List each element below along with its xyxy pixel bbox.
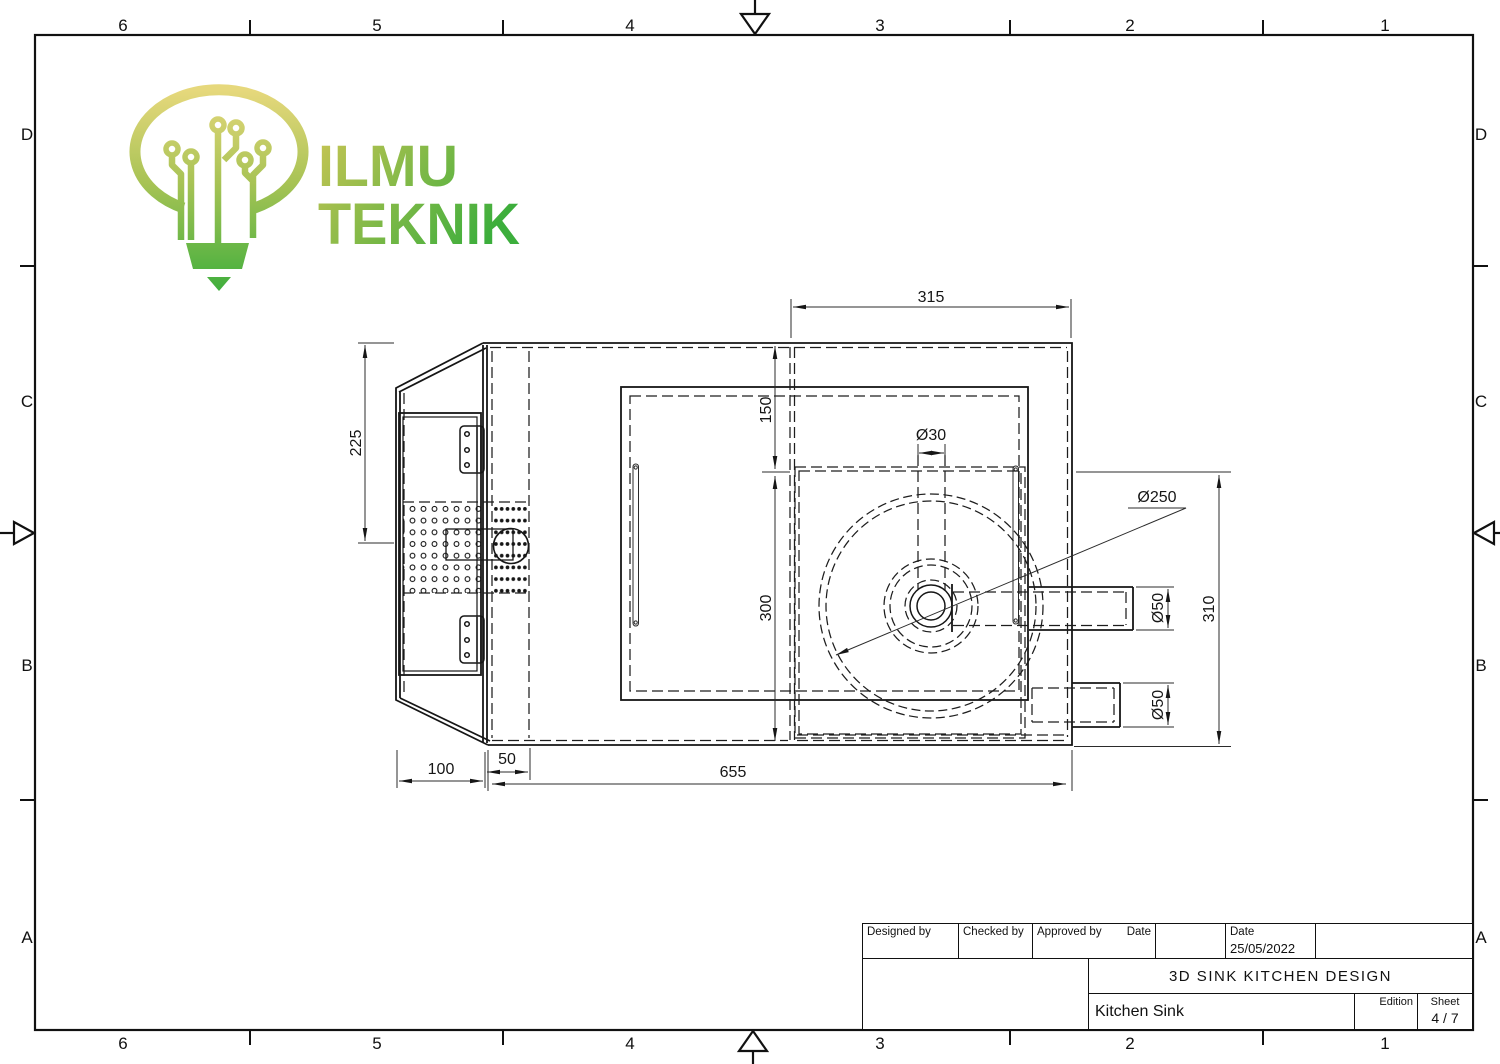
- perforation-field: [404, 504, 529, 593]
- grid-col-label: 4: [625, 16, 634, 35]
- empty-cell: [1316, 924, 1472, 958]
- grid-row-label: A: [1475, 928, 1487, 947]
- dim-right-height: 310: [1201, 596, 1218, 623]
- empty-cell: [1156, 924, 1226, 958]
- company-logo: ILMU TEKNIK: [135, 90, 520, 291]
- edition-label: Edition: [1379, 996, 1413, 1008]
- cover-slots: [633, 464, 1019, 626]
- date-cell: Date 25/05/2022: [1226, 924, 1316, 958]
- logo-word-1: ILMU: [318, 134, 458, 199]
- grid-row-label: A: [21, 928, 33, 947]
- dim-drain-hole: Ø30: [916, 427, 946, 444]
- dim-body-width: 655: [720, 764, 747, 781]
- hinge-top: [460, 426, 484, 473]
- dim-outlet-upper: Ø50: [1150, 593, 1167, 623]
- title-block: Designed by Checked by Approved by Date …: [862, 923, 1473, 1030]
- grid-col-label: 2: [1125, 16, 1134, 35]
- title-area: 3D SINK KITCHEN DESIGN Kitchen Sink Edit…: [1089, 959, 1472, 1029]
- grid-row-label: C: [21, 392, 33, 411]
- grid-col-label: 6: [118, 1034, 127, 1053]
- approved-by-label: Approved by: [1037, 926, 1102, 956]
- title-block-header-row: Designed by Checked by Approved by Date …: [863, 924, 1472, 959]
- hinge-bottom: [460, 616, 484, 663]
- dim-left-height: 225: [348, 430, 365, 457]
- grid-col-label: 3: [875, 16, 884, 35]
- dim-top-width: 315: [918, 289, 945, 306]
- grid-col-label: 2: [1125, 1034, 1134, 1053]
- grid-col-label: 1: [1380, 16, 1389, 35]
- date-label: Date: [1127, 926, 1151, 956]
- grid-col-label: 1: [1380, 1034, 1389, 1053]
- drain-opening: [910, 585, 952, 627]
- grid-col-label: 4: [625, 1034, 634, 1053]
- grid-ticks: [20, 20, 1488, 1045]
- approved-by-cell: Approved by Date: [1033, 924, 1156, 958]
- designed-by-label: Designed by: [867, 926, 931, 938]
- sheet-cell: Sheet 4 / 7: [1417, 994, 1472, 1029]
- grid-col-label: 3: [875, 1034, 884, 1053]
- date-value: 25/05/2022: [1230, 941, 1311, 956]
- bowl-hidden-circles: [819, 494, 1043, 718]
- sheet-value: 4 / 7: [1431, 1010, 1458, 1026]
- part-title: Kitchen Sink: [1089, 994, 1354, 1029]
- checked-by-cell: Checked by: [959, 924, 1033, 958]
- part-row: Kitchen Sink Edition Sheet 4 / 7: [1089, 994, 1472, 1029]
- dim-strip-width: 50: [498, 751, 516, 768]
- drawing-sheet: 6 5 4 3 2 1 6 5 4 3 2 1 D C B A D C B A: [0, 0, 1500, 1064]
- grid-row-label: B: [21, 656, 32, 675]
- dim-bowl-depth: 300: [758, 595, 775, 622]
- project-title: 3D SINK KITCHEN DESIGN: [1089, 959, 1472, 994]
- date-label: Date: [1230, 926, 1311, 938]
- grid-col-label: 5: [372, 16, 381, 35]
- grid-row-label: C: [1475, 392, 1487, 411]
- dim-bowl-dia: Ø250: [1137, 489, 1176, 506]
- sheet-svg: 6 5 4 3 2 1 6 5 4 3 2 1 D C B A D C B A: [0, 0, 1500, 1064]
- grid-row-label: B: [1475, 656, 1486, 675]
- title-block-main-row: 3D SINK KITCHEN DESIGN Kitchen Sink Edit…: [863, 959, 1472, 1029]
- checked-by-label: Checked by: [963, 926, 1024, 938]
- grid-row-label: D: [21, 125, 33, 144]
- dim-upper-offset: 150: [758, 397, 775, 424]
- grid-col-label: 6: [118, 16, 127, 35]
- dim-outlet-lower: Ø50: [1150, 690, 1167, 720]
- lightbulb-icon: [135, 90, 303, 291]
- grid-labels: 6 5 4 3 2 1 6 5 4 3 2 1 D C B A D C B A: [21, 16, 1487, 1053]
- grid-row-label: D: [1475, 125, 1487, 144]
- empty-cell: [863, 959, 1089, 1029]
- sheet-label: Sheet: [1431, 996, 1460, 1008]
- dim-door-width: 100: [428, 761, 455, 778]
- edition-cell: Edition: [1354, 994, 1417, 1029]
- grid-col-label: 5: [372, 1034, 381, 1053]
- logo-word-2: TEKNIK: [318, 192, 520, 257]
- outlet-pipe-lower: [1072, 683, 1120, 727]
- designed-by-cell: Designed by: [863, 924, 959, 958]
